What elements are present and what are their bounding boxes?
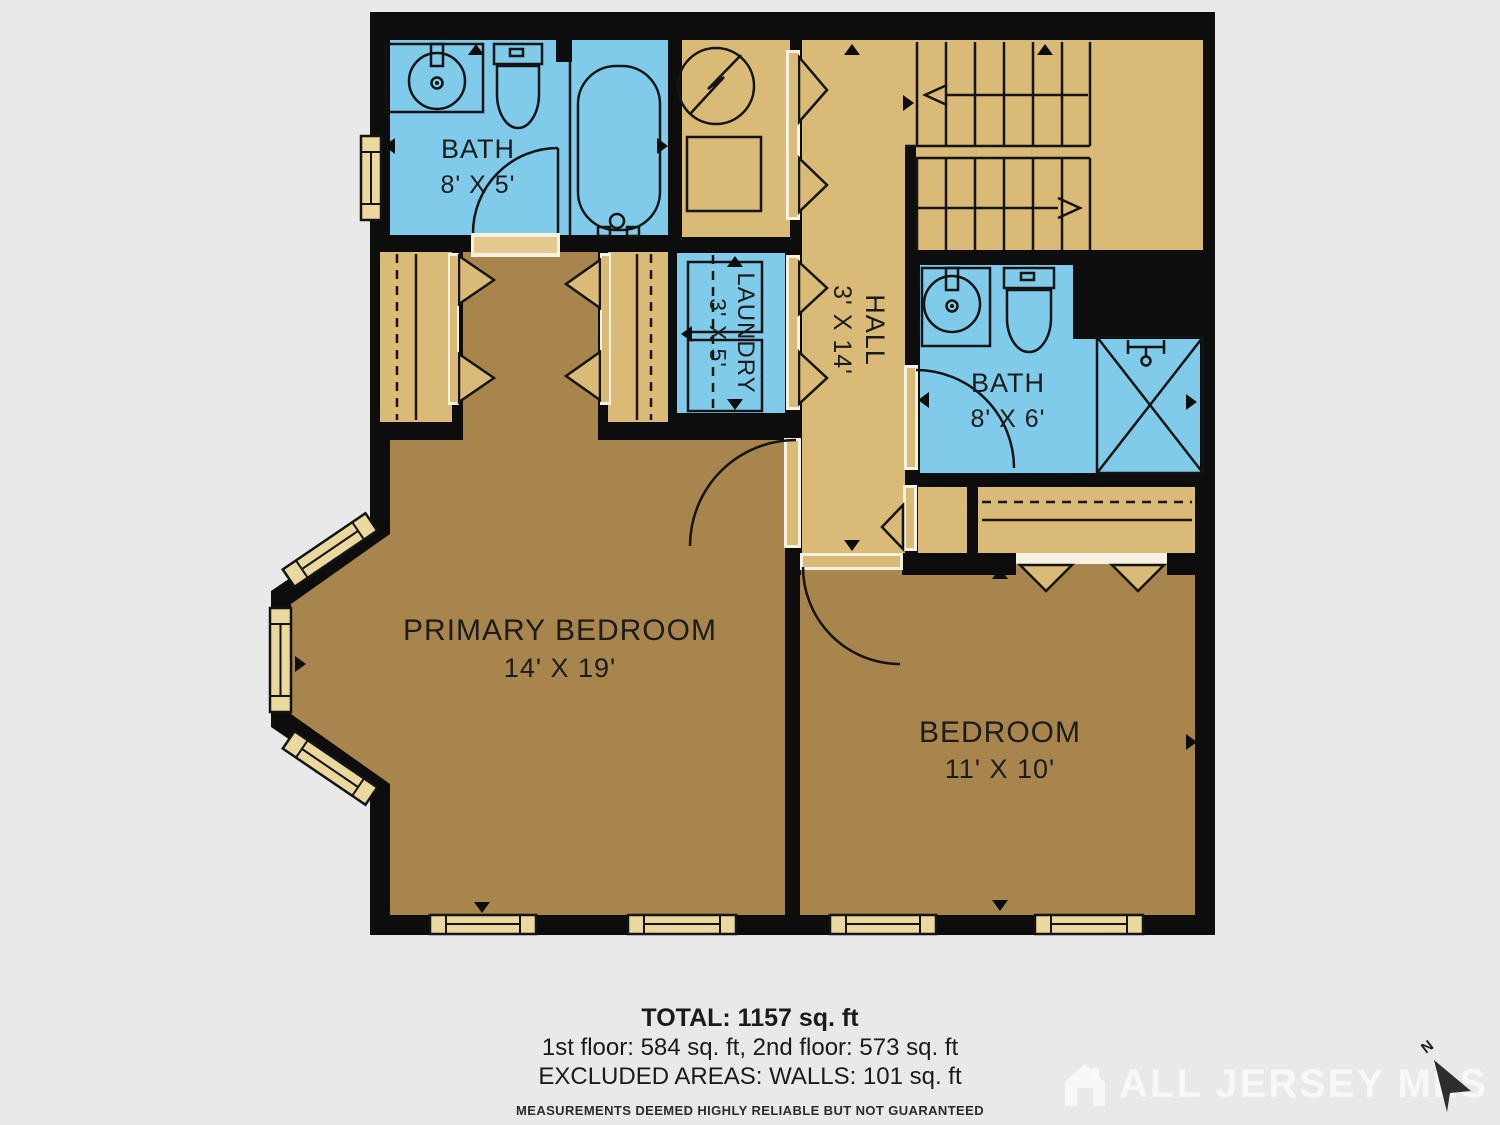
window — [430, 915, 536, 934]
primary-bedroom-label: PRIMARY BEDROOM — [403, 614, 717, 647]
bath-2-chase — [1073, 265, 1200, 339]
bath-1-dims: 8' X 5' — [441, 171, 516, 199]
window — [830, 915, 936, 934]
north-arrow-icon: N — [1408, 1038, 1492, 1122]
laundry-label: LAUNDRY — [732, 272, 759, 393]
stair-stringer-wall — [905, 146, 916, 250]
hall-dims: 3' X 14' — [828, 285, 856, 375]
bedroom-label: BEDROOM — [919, 716, 1081, 749]
bay-window-mid — [270, 608, 291, 712]
bath-1-floor — [390, 40, 668, 235]
primary-bedroom-dims: 14' X 19' — [504, 653, 616, 683]
tub-wall-stub — [556, 40, 572, 62]
compass-north-label: N — [1418, 1038, 1437, 1057]
utility-closet-floor — [682, 40, 790, 237]
bedroom-closet-door-gap — [1016, 553, 1167, 564]
linen-closet-floor — [918, 487, 967, 553]
laundry-dims: 3' X 5' — [705, 298, 731, 368]
house-logo-icon — [1059, 1058, 1111, 1110]
bath-1-label: BATH — [441, 134, 515, 164]
bath-2-dims: 8' X 6' — [971, 405, 1046, 433]
floor-plan-page: BATH 8' X 5' LAUNDRY 3' X 5' HALL 3' X 1… — [0, 0, 1500, 1125]
window — [1035, 915, 1143, 934]
floor-plan: BATH 8' X 5' LAUNDRY 3' X 5' HALL 3' X 1… — [0, 0, 1500, 1125]
window — [628, 915, 736, 934]
bath-2-label: BATH — [971, 368, 1045, 398]
window — [361, 136, 381, 220]
total-area: TOTAL: 1157 sq. ft — [0, 1003, 1500, 1033]
hall-label: HALL — [860, 294, 890, 366]
bedroom-dims: 11' X 10' — [945, 754, 1055, 784]
